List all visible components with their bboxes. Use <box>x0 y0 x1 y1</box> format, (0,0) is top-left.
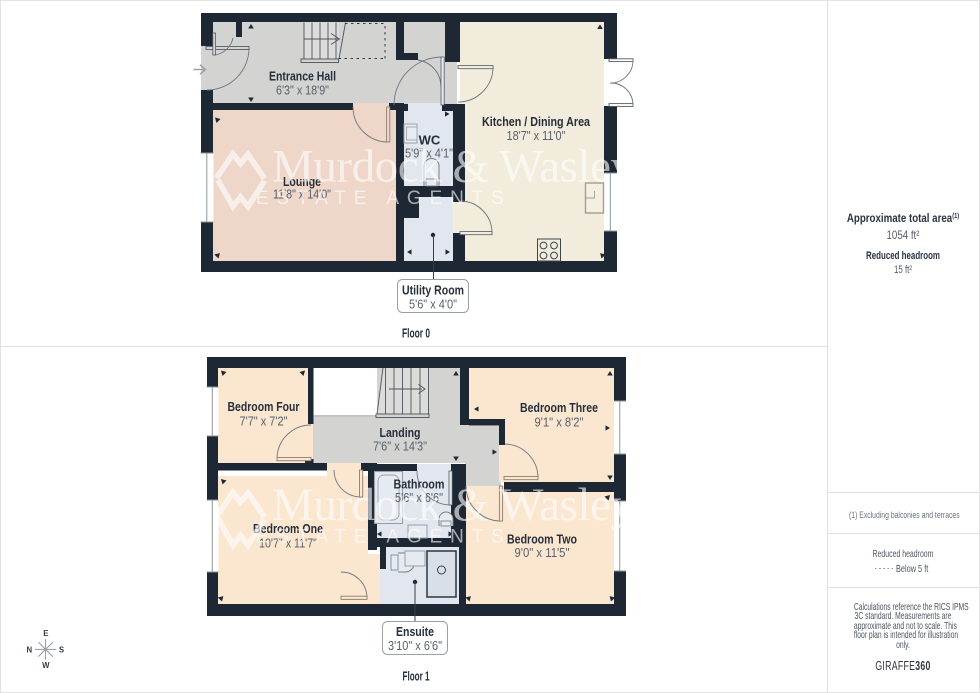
svg-text:ESTATE AGENTS: ESTATE AGENTS <box>256 527 512 548</box>
svg-text:Bedroom Four: Bedroom Four <box>228 399 300 414</box>
svg-text:5'6" x 4'0": 5'6" x 4'0" <box>409 298 457 312</box>
svg-text:6'3" x 18'9": 6'3" x 18'9" <box>276 84 329 98</box>
svg-text:7'6" x 14'3": 7'6" x 14'3" <box>373 440 427 454</box>
svg-text:Bedroom Three: Bedroom Three <box>520 400 598 415</box>
svg-text:9'1" x 8'2": 9'1" x 8'2" <box>535 416 584 430</box>
svg-text:Bedroom Two: Bedroom Two <box>507 532 577 547</box>
svg-text:Murdock & Wasley: Murdock & Wasley <box>272 479 635 531</box>
svg-text:3'10" x 6'6": 3'10" x 6'6" <box>388 639 442 653</box>
svg-text:7'7" x 7'2": 7'7" x 7'2" <box>240 415 288 429</box>
svg-text:ESTATE AGENTS: ESTATE AGENTS <box>256 188 512 209</box>
svg-text:Entrance Hall: Entrance Hall <box>269 69 336 84</box>
svg-text:Landing: Landing <box>380 425 421 440</box>
svg-text:Floor 0: Floor 0 <box>402 327 430 341</box>
svg-text:9'0" x 11'5": 9'0" x 11'5" <box>515 546 570 560</box>
svg-text:Kitchen / Dining Area: Kitchen / Dining Area <box>482 114 591 129</box>
svg-text:Utility Room: Utility Room <box>402 283 464 298</box>
svg-text:Murdock & Wasley: Murdock & Wasley <box>272 141 635 193</box>
svg-text:Floor 1: Floor 1 <box>403 670 430 684</box>
svg-text:Ensuite: Ensuite <box>396 624 434 639</box>
